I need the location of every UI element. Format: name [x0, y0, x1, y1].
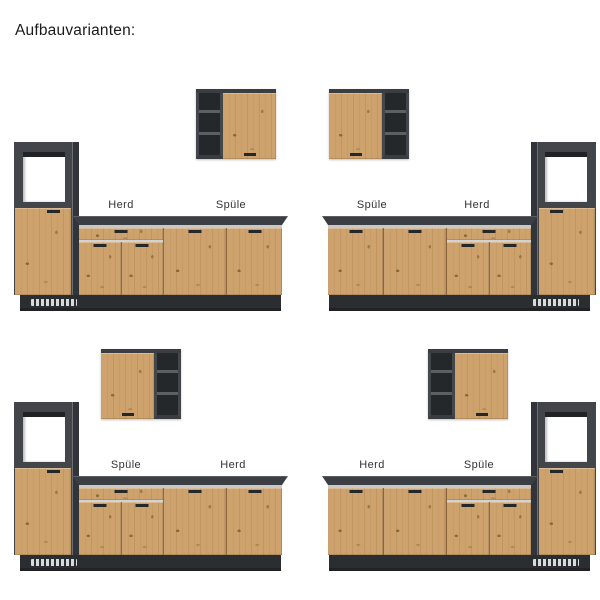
cabinet-door [121, 242, 164, 295]
plinth [329, 555, 590, 571]
door-handle [93, 244, 106, 247]
door-handle [47, 470, 60, 473]
base-cabinet-door-unit [226, 488, 282, 555]
door-handle [550, 470, 563, 473]
base-cabinet-door-unit [328, 228, 384, 295]
kitchen-variant-4: Herd Spüle [300, 345, 600, 580]
kitchen-variant-1: Herd Spüle [0, 85, 300, 320]
tall-cabinet-door [15, 468, 71, 555]
drawer-front [79, 228, 163, 240]
door-handle [93, 504, 106, 507]
tall-cabinet-door [539, 208, 595, 295]
kitchen-variant-3: Spüle Herd [0, 345, 300, 580]
base-cabinet-door-unit [163, 488, 226, 555]
cabinet-door [489, 242, 532, 295]
door-handle [504, 504, 517, 507]
door-handle [248, 230, 261, 233]
door-handle [349, 230, 362, 233]
base-cabinet-run [328, 488, 531, 555]
plinth [20, 295, 281, 311]
base-cabinet-run [79, 488, 282, 555]
door-handle [409, 490, 422, 493]
cabinet-door [79, 502, 121, 555]
countertop [72, 216, 288, 225]
base-cabinet-door-unit [226, 228, 282, 295]
oven-niche [23, 412, 65, 462]
oven-niche [545, 412, 587, 462]
base-cabinet-drawer-unit [79, 488, 163, 555]
base-cabinet-drawer-unit [447, 488, 531, 555]
base-cabinet-door-unit [384, 488, 447, 555]
tall-oven-cabinet [14, 142, 79, 295]
cabinet-door [447, 502, 489, 555]
countertop [72, 476, 288, 485]
cabinet-door [447, 242, 489, 295]
door-handle [504, 244, 517, 247]
base-cabinet-door-unit [384, 228, 447, 295]
base-cabinet-drawer-unit [447, 228, 531, 295]
door-handle [461, 244, 474, 247]
door-handle [47, 210, 60, 213]
base-cabinet-run [79, 228, 282, 295]
tall-cabinet-door [539, 468, 595, 555]
double-doors [79, 500, 163, 555]
tall-oven-cabinet [14, 402, 79, 555]
base-cabinet-drawer-unit [79, 228, 163, 295]
drawer-front [447, 488, 531, 500]
tall-cabinet-door [15, 208, 71, 295]
cabinet-door [489, 502, 532, 555]
vent-grille [533, 299, 579, 306]
double-doors [447, 240, 531, 295]
countertop [322, 476, 538, 485]
base-cabinet-door-unit [163, 228, 226, 295]
door-handle [136, 244, 149, 247]
tall-oven-cabinet [531, 142, 596, 295]
kitchen-block [12, 142, 290, 311]
double-doors [79, 240, 163, 295]
vent-grille [533, 559, 579, 566]
plinth [20, 555, 281, 571]
drawer-front [79, 488, 163, 500]
drawer-front [447, 228, 531, 240]
kitchen-block [12, 402, 290, 571]
oven-niche [545, 152, 587, 202]
page-title: Aufbauvarianten: [15, 22, 135, 40]
drawer-handle [115, 490, 128, 493]
tall-oven-cabinet [531, 402, 596, 555]
cabinet-door [121, 502, 164, 555]
plinth [329, 295, 590, 311]
door-handle [248, 490, 261, 493]
door-handle [136, 504, 149, 507]
door-handle [550, 210, 563, 213]
cabinet-door [79, 242, 121, 295]
kitchen-variant-2: Spüle Herd [300, 85, 600, 320]
drawer-handle [483, 230, 496, 233]
door-handle [189, 490, 202, 493]
vent-grille [31, 559, 77, 566]
drawer-handle [483, 490, 496, 493]
vent-grille [31, 299, 77, 306]
drawer-handle [115, 230, 128, 233]
door-handle [409, 230, 422, 233]
door-handle [349, 490, 362, 493]
countertop [322, 216, 538, 225]
double-doors [447, 500, 531, 555]
base-cabinet-door-unit [328, 488, 384, 555]
kitchen-block [320, 142, 598, 311]
door-handle [189, 230, 202, 233]
base-cabinet-run [328, 228, 531, 295]
door-handle [461, 504, 474, 507]
kitchen-block [320, 402, 598, 571]
oven-niche [23, 152, 65, 202]
